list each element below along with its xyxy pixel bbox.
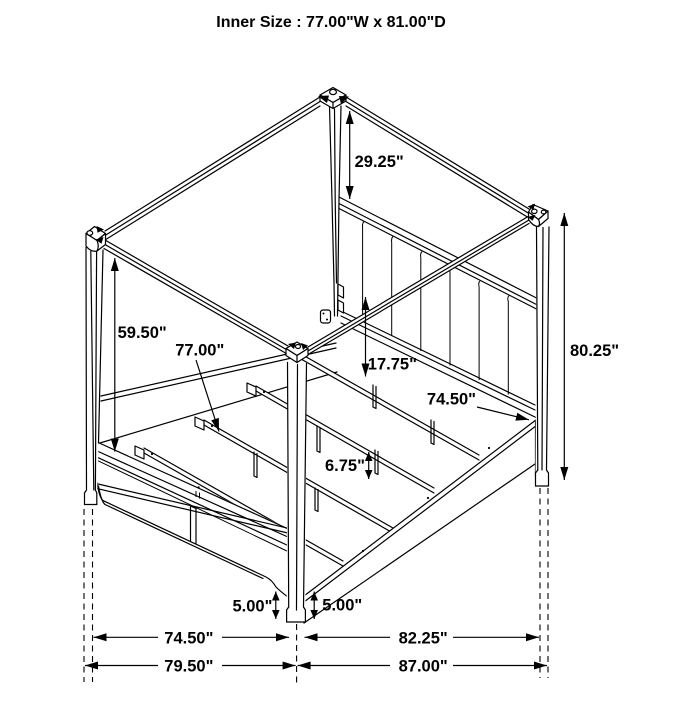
svg-text:6.75": 6.75" (325, 457, 365, 475)
svg-text:82.25": 82.25" (399, 630, 448, 648)
svg-text:5.00": 5.00" (322, 597, 362, 615)
svg-text:59.50": 59.50" (118, 324, 167, 342)
svg-text:87.00": 87.00" (399, 658, 448, 676)
svg-text:Inner Size : 77.00"W x 81.00"D: Inner Size : 77.00"W x 81.00"D (216, 14, 446, 31)
svg-text:29.25": 29.25" (355, 153, 404, 171)
svg-text:80.25": 80.25" (570, 342, 619, 360)
svg-text:77.00": 77.00" (175, 342, 224, 360)
svg-text:5.00": 5.00" (233, 598, 273, 616)
svg-text:17.75": 17.75" (368, 356, 417, 374)
svg-text:74.50": 74.50" (427, 391, 476, 409)
svg-text:74.50": 74.50" (164, 630, 213, 648)
svg-text:79.50": 79.50" (164, 658, 213, 676)
